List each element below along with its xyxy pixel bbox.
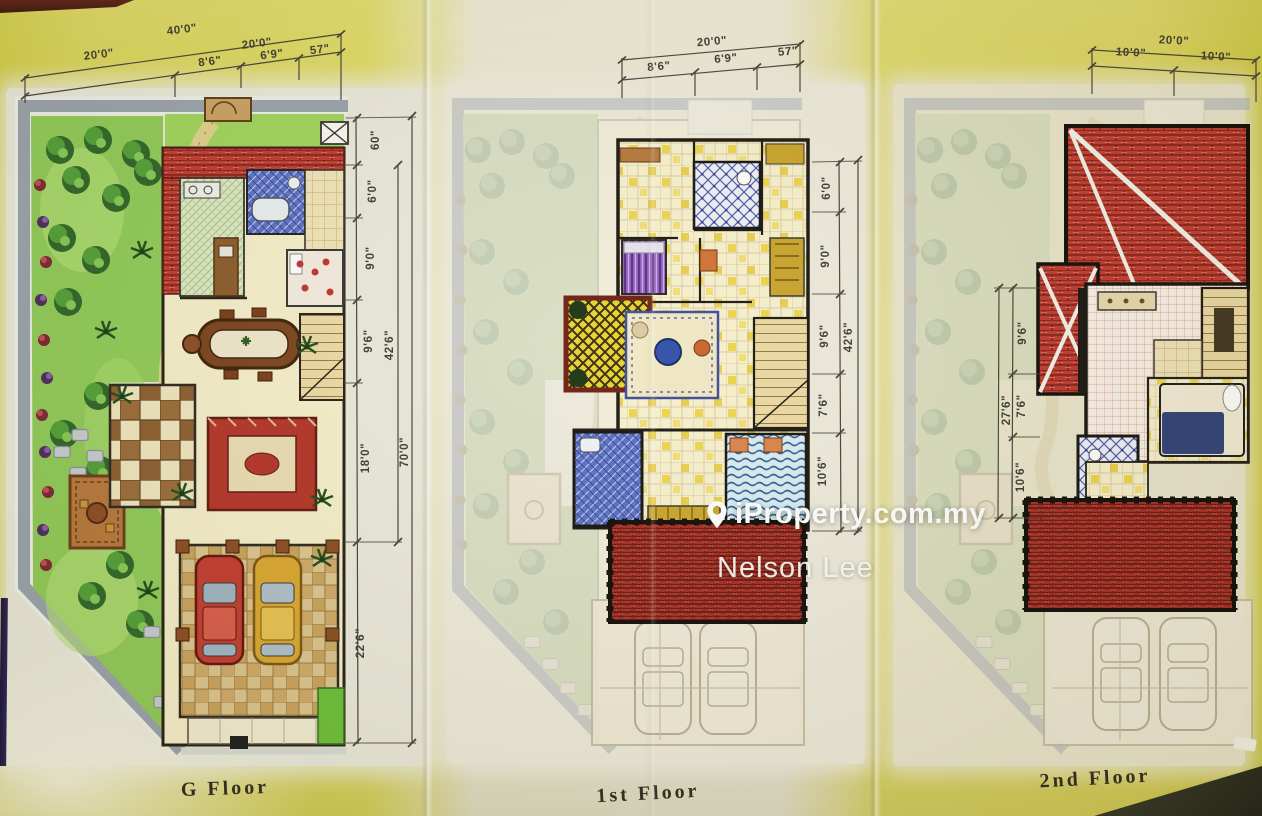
g-entrance-steps <box>188 718 330 749</box>
m-bathroom-bottom <box>574 432 642 526</box>
dim-m-seg-1: 6'0" <box>821 176 833 199</box>
watermark-agent: Nelson Lee <box>717 552 874 585</box>
dim-m-seg-2: 9'0" <box>820 244 832 267</box>
dim-g-total-depth: 70'0" <box>399 437 411 467</box>
dim-r-seg-2: 7'6" <box>1016 394 1028 417</box>
location-pin-icon <box>706 500 728 530</box>
dim-r-total-depth: 27'6" <box>1001 395 1013 425</box>
r-staircase <box>1202 288 1248 392</box>
dim-m-total-depth: 42'6" <box>843 322 855 352</box>
r-closet <box>1098 292 1156 310</box>
dim-g-seg-6: 22'6" <box>355 628 367 658</box>
m-armchair <box>700 250 717 271</box>
g-patio <box>110 385 195 507</box>
dim-r-sub-2: 10'0" <box>1201 50 1232 64</box>
m-family-area <box>626 312 718 398</box>
dim-r-seg-3: 10'6" <box>1015 462 1027 492</box>
r-hall-floor <box>1086 462 1148 500</box>
dim-g-subtotal: 42'6" <box>384 330 396 360</box>
g-maid-room-bed <box>287 250 343 306</box>
g-green-patch <box>318 688 344 744</box>
g-bathroom <box>247 170 305 234</box>
g-living-room-rug <box>208 418 316 510</box>
gate-icon <box>205 98 251 121</box>
watermark-brand-text: iProperty.com.my <box>735 498 986 531</box>
g-floor-label: G Floor <box>181 776 270 802</box>
dim-g-seg-4: 9'6" <box>363 329 375 352</box>
dim-m-seg-3: 9'6" <box>819 324 831 347</box>
g-staircase <box>300 314 344 400</box>
dim-g-seg-1: 60" <box>370 130 382 150</box>
m-wardrobe <box>766 144 804 164</box>
meter-box-icon <box>321 122 348 144</box>
floor-plans-drawing <box>0 0 1262 816</box>
dim-g-seg-5: 18'0" <box>360 443 372 473</box>
r-upper-floor <box>1078 284 1248 514</box>
dim-r-sub-1: 10'0" <box>1116 46 1147 60</box>
first-floor-plan <box>455 41 863 751</box>
dim-r-seg-1: 9'6" <box>1017 321 1029 344</box>
dim-m-sub-3: 57" <box>777 45 798 59</box>
dim-m-sub-2: 6'9" <box>714 52 738 66</box>
g-car-porch <box>176 540 339 717</box>
r-wall-hatch <box>1078 288 1086 394</box>
dim-g-seg-2: 6'0" <box>367 179 379 202</box>
dim-g-seg-3: 9'0" <box>365 246 377 269</box>
dim-g-sub-3: 57" <box>309 43 330 57</box>
m-staircase <box>754 318 808 428</box>
g-car-yellow <box>254 556 301 664</box>
m-dresser <box>620 148 660 162</box>
dim-m-seg-5: 10'6" <box>817 456 829 486</box>
dim-m-seg-4: 7'6" <box>818 393 830 416</box>
m-wardrobe-right <box>770 238 804 296</box>
r-bedroom <box>1148 378 1248 462</box>
dim-r-total-width: 20'0" <box>1159 34 1190 48</box>
dim-m-sub-1: 8'6" <box>647 60 671 74</box>
r-porch-roof <box>1026 500 1234 610</box>
r-ghost-porch-cars <box>1044 600 1252 745</box>
brochure-photo: 40'0" 20'0" 20'0" 8'6" 6'9" 57" 60" 6'0"… <box>0 0 1262 816</box>
m-bathroom-top <box>694 162 760 228</box>
g-car-red <box>196 556 243 664</box>
second-floor-plan <box>907 47 1261 751</box>
g-kitchen <box>180 178 244 296</box>
watermark-brand: iProperty.com.my <box>706 498 986 531</box>
m-bed-purple <box>622 240 666 294</box>
